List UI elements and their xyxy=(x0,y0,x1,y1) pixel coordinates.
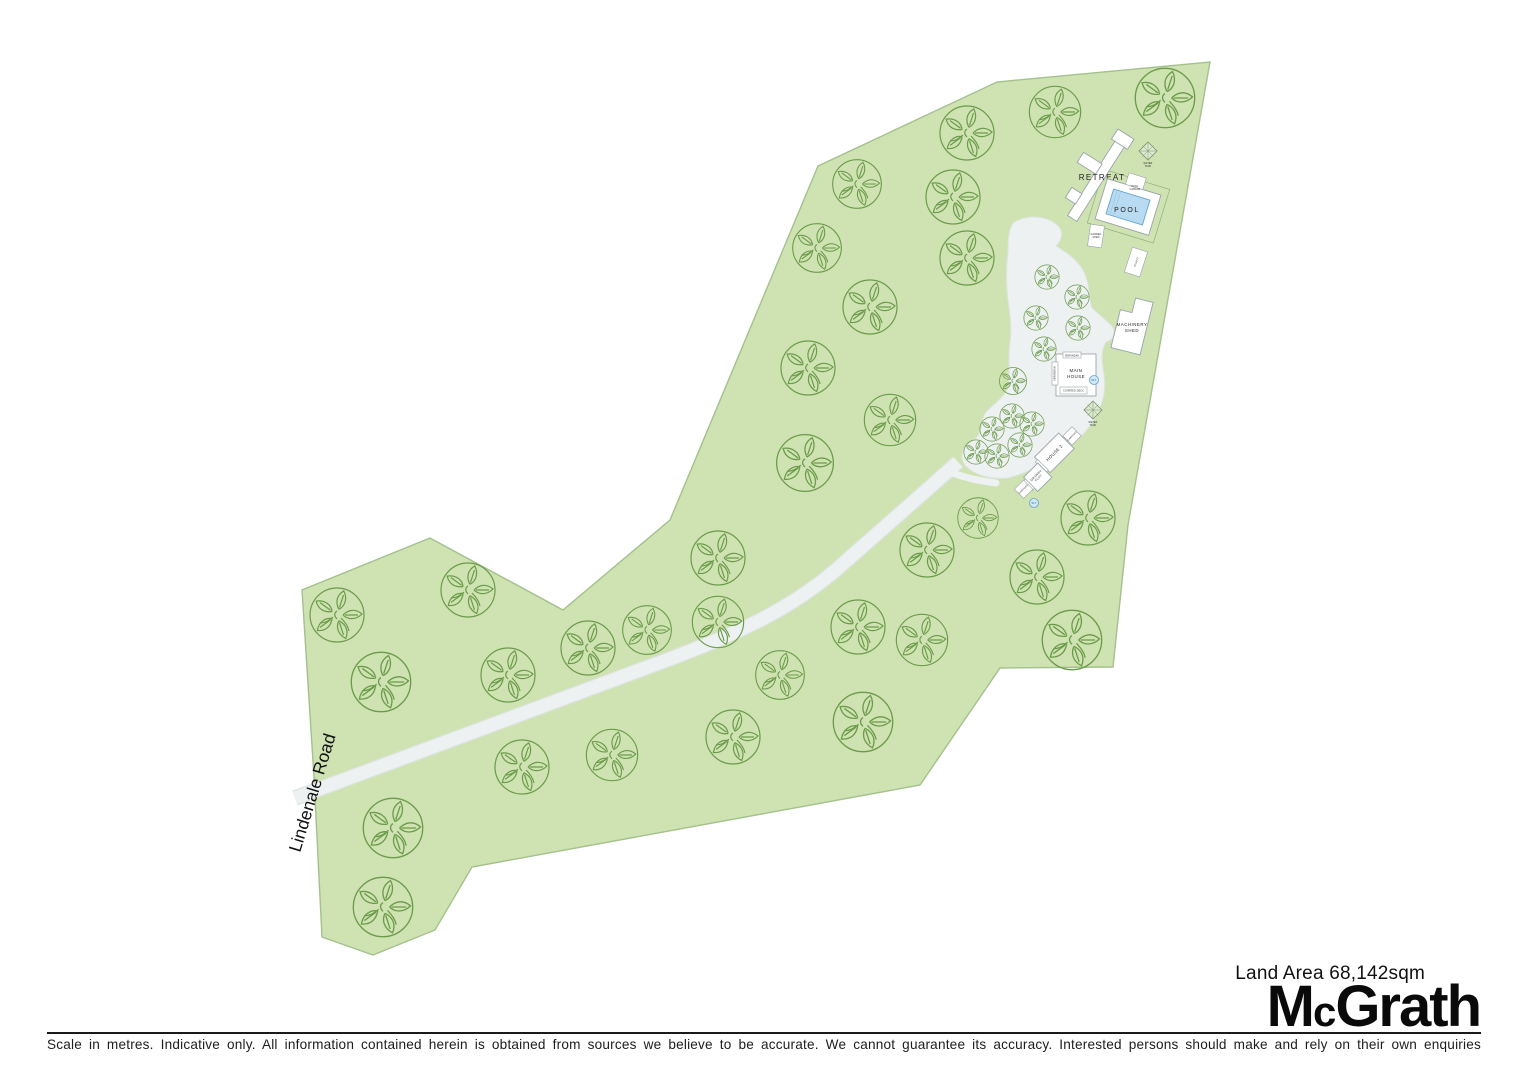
covered-deck-label: COVERED DECK xyxy=(1063,391,1084,393)
verandah-top-label: VERANDAH xyxy=(1065,355,1080,358)
logo-letters-grath: Grath xyxy=(1335,978,1480,1036)
marker-south-label-1: WATER xyxy=(1088,421,1097,424)
divider-line xyxy=(47,1032,1481,1034)
retreat-label: RETREAT xyxy=(1079,173,1126,182)
marker-south-label-2: TANK xyxy=(1090,424,1097,427)
pool-cabana-label-1: POOL xyxy=(1131,186,1139,188)
water-tank-abbr-2: W.T. xyxy=(1031,501,1036,505)
disclaimer-text: Scale in metres. Indicative only. All in… xyxy=(47,1037,1481,1052)
garden-shed-label-1: GARDEN xyxy=(1090,233,1101,236)
logo-letter-c: c xyxy=(1313,991,1335,1033)
verandah-left-label: VERANDAH xyxy=(1054,366,1057,381)
main-house-label-2: HOUSE xyxy=(1067,374,1085,379)
machinery-shed-label-2: SHED xyxy=(1125,328,1139,333)
marker-north-label-1: WATER xyxy=(1143,162,1152,165)
machinery-shed-label-1: MACHINERY xyxy=(1117,322,1148,327)
main-house-label-1: MAIN xyxy=(1070,368,1083,373)
mcgrath-logo: McGrath xyxy=(1267,978,1480,1036)
site-plan-map: RETREAT POOL POOL CABANA GARDEN SHED STU… xyxy=(0,0,1528,1080)
water-tank-abbr-1: W.T. xyxy=(1091,378,1096,382)
pool-label: POOL xyxy=(1114,207,1140,214)
pool-cabana-label-2: CABANA xyxy=(1130,188,1141,191)
site-plan-page: RETREAT POOL POOL CABANA GARDEN SHED STU… xyxy=(0,0,1528,1080)
logo-letter-m: M xyxy=(1267,978,1313,1036)
marker-north-label-2: TANK xyxy=(1145,165,1152,168)
garden-shed-box xyxy=(1088,224,1105,248)
garden-shed-label-2: SHED xyxy=(1092,237,1099,239)
